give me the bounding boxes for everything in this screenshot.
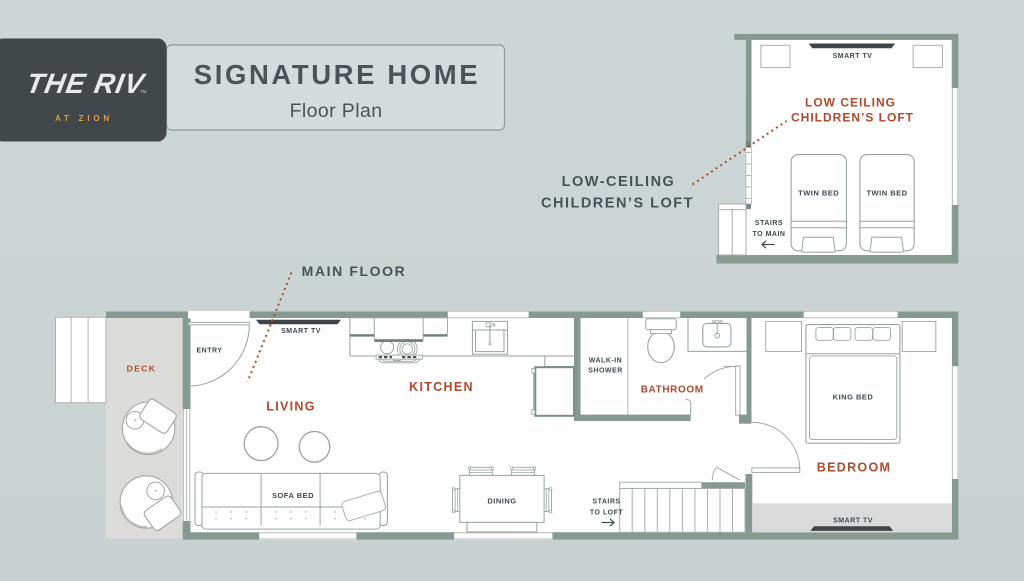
svg-text:STAIRS: STAIRS <box>755 220 783 227</box>
svg-text:LOW CEILING: LOW CEILING <box>805 96 896 110</box>
svg-text:LOW-CEILING: LOW-CEILING <box>562 174 676 190</box>
svg-text:SIGNATURE HOME: SIGNATURE HOME <box>194 59 480 90</box>
svg-text:Floor Plan: Floor Plan <box>290 100 383 122</box>
svg-text:CHILDREN’S LOFT: CHILDREN’S LOFT <box>541 196 694 212</box>
svg-text:TM: TM <box>140 89 147 94</box>
svg-text:TWIN BED: TWIN BED <box>866 189 907 198</box>
svg-text:KITCHEN: KITCHEN <box>409 380 474 394</box>
svg-text:DECK: DECK <box>127 364 157 374</box>
svg-text:WALK-IN: WALK-IN <box>589 358 622 365</box>
svg-text:THE RIV: THE RIV <box>24 67 148 99</box>
svg-text:BATHROOM: BATHROOM <box>641 385 704 396</box>
svg-text:SOFA BED: SOFA BED <box>272 491 314 500</box>
svg-text:CHILDREN’S LOFT: CHILDREN’S LOFT <box>791 111 914 125</box>
svg-text:AT ZION: AT ZION <box>55 114 113 123</box>
svg-text:TO LOFT: TO LOFT <box>590 510 624 517</box>
svg-text:BEDROOM: BEDROOM <box>817 461 891 475</box>
svg-text:TO MAIN: TO MAIN <box>753 231 786 238</box>
svg-text:LIVING: LIVING <box>266 400 315 414</box>
svg-text:TWIN BED: TWIN BED <box>798 189 839 198</box>
svg-text:SHOWER: SHOWER <box>588 368 623 375</box>
svg-text:KING BED: KING BED <box>833 393 874 402</box>
svg-text:ENTRY: ENTRY <box>197 348 223 355</box>
svg-text:STAIRS: STAIRS <box>592 499 620 506</box>
svg-text:SMART TV: SMART TV <box>833 518 873 525</box>
svg-text:DINING: DINING <box>487 497 516 506</box>
svg-text:SMART TV: SMART TV <box>281 328 321 335</box>
svg-text:MAIN FLOOR: MAIN FLOOR <box>302 263 407 279</box>
svg-text:SMART TV: SMART TV <box>833 53 873 60</box>
